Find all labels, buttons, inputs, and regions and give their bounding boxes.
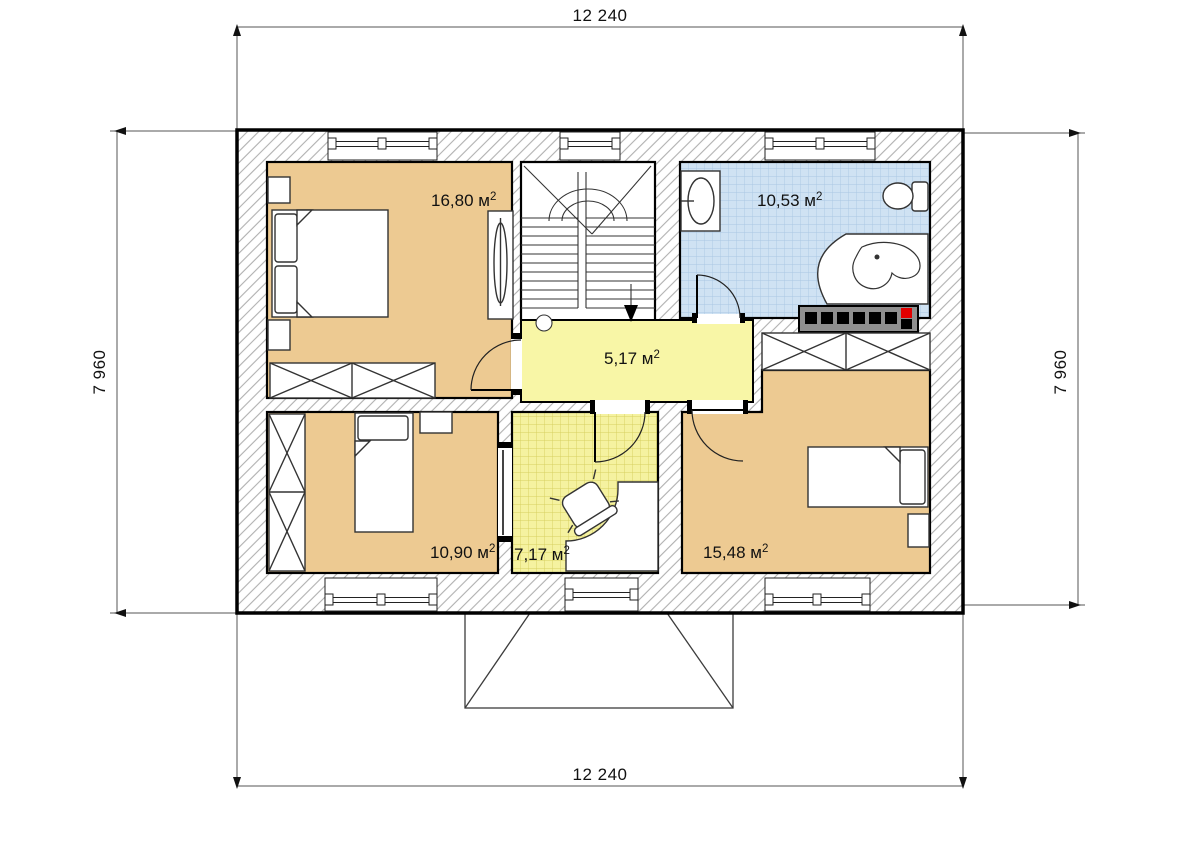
- mirror-icon: [488, 211, 513, 319]
- window: [560, 132, 620, 160]
- dimension-label-bottom: 12 240: [573, 765, 628, 784]
- dimension-bottom: 12 240: [233, 613, 967, 789]
- dimension-label-left: 7 960: [90, 349, 109, 394]
- sink-icon: [681, 171, 720, 231]
- window: [565, 578, 638, 611]
- radiator-red-indicator: [901, 308, 912, 318]
- dimension-arrow: [114, 127, 126, 135]
- nightstand-icon: [908, 514, 929, 547]
- area-label-bedroom-2: 10,90 м2: [430, 543, 495, 562]
- area-label-bedroom-3: 15,48 м2: [703, 543, 768, 562]
- single-bed-icon: [355, 413, 413, 532]
- nightstand-icon: [268, 320, 290, 350]
- stairs-newel: [536, 315, 552, 331]
- corner-bath-icon: [818, 234, 928, 304]
- dimension-arrow: [233, 777, 241, 789]
- area-label-hall: 5,17 м2: [604, 349, 660, 368]
- porch-roof: [465, 613, 733, 708]
- dimension-right: 7 960: [963, 129, 1085, 609]
- window: [328, 132, 437, 160]
- dimension-top: 12 240: [233, 6, 967, 130]
- wardrobe-icon: [270, 363, 435, 398]
- floor-plan: 12 240 12 240 7 960 7 960: [0, 0, 1200, 849]
- dimension-left: 7 960: [90, 127, 237, 617]
- double-bed-icon: [272, 210, 388, 317]
- toilet-icon: [883, 182, 928, 211]
- dimension-arrow: [114, 609, 126, 617]
- window: [765, 578, 870, 611]
- wardrobe-icon: [762, 333, 930, 370]
- floor-plan-svg: 12 240 12 240 7 960 7 960: [0, 0, 1200, 849]
- dimension-arrow: [233, 24, 241, 36]
- nightstand-icon: [268, 177, 290, 203]
- single-bed-icon: [808, 447, 928, 507]
- room-stairwell: [521, 162, 655, 320]
- wardrobe-icon: [269, 414, 305, 571]
- dimension-label-top: 12 240: [573, 6, 628, 25]
- area-label-bedroom-1: 16,80 м2: [431, 191, 496, 210]
- window: [765, 132, 875, 160]
- window: [325, 578, 437, 611]
- dimension-label-right: 7 960: [1051, 349, 1070, 394]
- dimension-arrow: [1069, 129, 1081, 137]
- dimension-arrow: [1069, 601, 1081, 609]
- area-label-bathroom: 10,53 м2: [757, 191, 822, 210]
- area-label-study: 7,17 м2: [514, 545, 570, 564]
- door-bedroom-2: [498, 442, 512, 542]
- dimension-arrow: [959, 777, 967, 789]
- towel-radiator-icon: [799, 306, 918, 332]
- dimension-arrow: [959, 24, 967, 36]
- shelf-icon: [420, 412, 452, 433]
